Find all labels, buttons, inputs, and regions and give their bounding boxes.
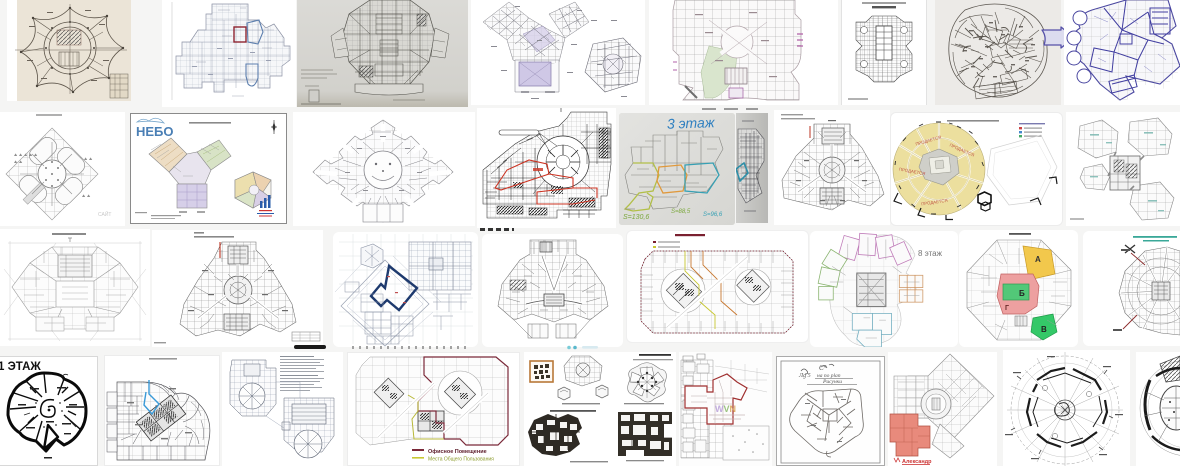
svg-text:C°: C° [819, 364, 827, 372]
svg-text:WVN: WVN [715, 404, 736, 414]
svg-text:S=130,6: S=130,6 [623, 214, 649, 221]
svg-text:В: В [1041, 325, 1047, 334]
svg-text:3 этаж: 3 этаж [667, 114, 716, 132]
svg-text:Рисунки: Рисунки [822, 379, 842, 385]
svg-text:Г: Г [1005, 305, 1009, 312]
svg-text:1 ЭТАЖ: 1 ЭТАЖ [0, 361, 41, 373]
svg-text:А: А [1035, 255, 1041, 264]
svg-text:НЕБО: НЕБО [136, 124, 174, 139]
svg-text:8 этаж: 8 этаж [918, 249, 943, 258]
svg-text:S=88,5: S=88,5 [671, 209, 691, 215]
svg-text:Офисное Помещение: Офисное Помещение [428, 448, 487, 455]
svg-text:S=96,6: S=96,6 [703, 212, 723, 218]
svg-text:Б: Б [1019, 289, 1025, 298]
svg-text:Места Общего Пользования: Места Общего Пользования [428, 457, 494, 463]
svg-text:САЙТ: САЙТ [98, 210, 111, 218]
svg-text:Лg 5: Лg 5 [798, 373, 811, 379]
